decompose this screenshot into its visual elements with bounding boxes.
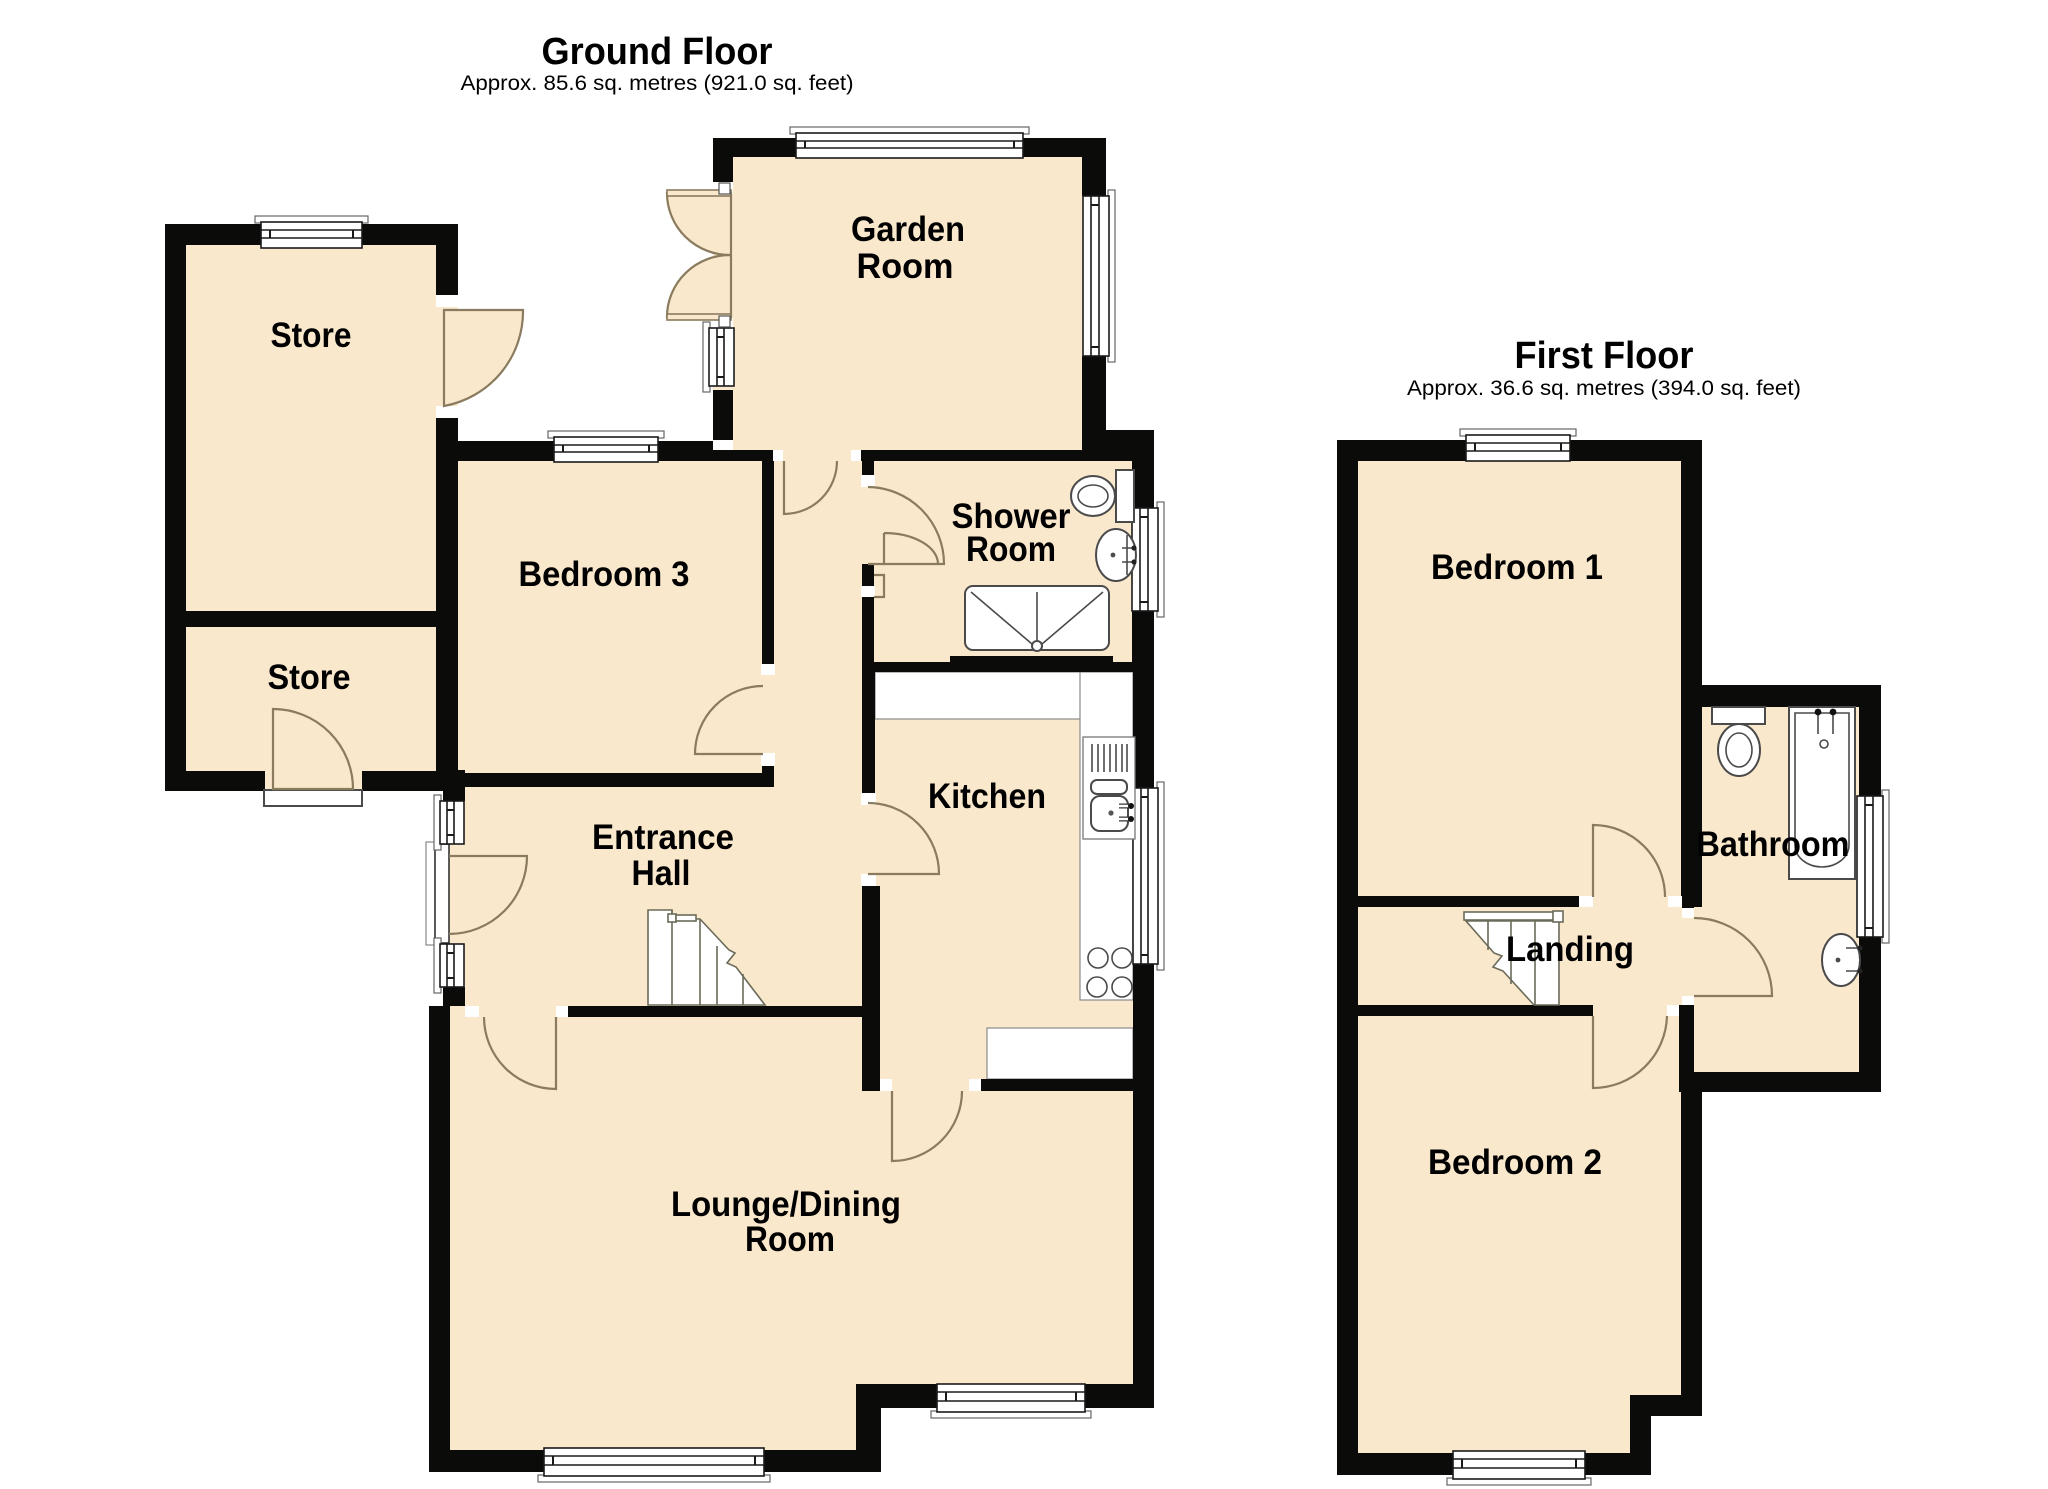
- svg-text:Bedroom 1: Bedroom 1: [1431, 548, 1603, 587]
- svg-text:Bedroom 3: Bedroom 3: [519, 555, 690, 594]
- svg-text:Garden: Garden: [851, 210, 965, 249]
- svg-text:Room: Room: [966, 530, 1056, 569]
- svg-text:Kitchen: Kitchen: [928, 777, 1046, 816]
- svg-text:Landing: Landing: [1506, 930, 1634, 969]
- svg-text:First Floor: First Floor: [1515, 335, 1694, 377]
- svg-text:Room: Room: [857, 247, 954, 286]
- svg-text:Bedroom 2: Bedroom 2: [1428, 1143, 1602, 1182]
- svg-text:Lounge/Dining: Lounge/Dining: [671, 1185, 901, 1224]
- svg-text:Bathroom: Bathroom: [1697, 825, 1850, 864]
- svg-text:Ground Floor: Ground Floor: [542, 31, 773, 73]
- svg-text:Store: Store: [268, 658, 351, 697]
- svg-text:Entrance: Entrance: [592, 818, 734, 857]
- svg-text:Approx. 85.6 sq. metres (921.0: Approx. 85.6 sq. metres (921.0 sq. feet): [461, 72, 854, 95]
- svg-text:Store: Store: [271, 316, 352, 355]
- svg-text:Approx. 36.6 sq. metres (394.0: Approx. 36.6 sq. metres (394.0 sq. feet): [1407, 377, 1801, 400]
- svg-text:Hall: Hall: [632, 854, 691, 893]
- svg-text:Room: Room: [745, 1220, 835, 1259]
